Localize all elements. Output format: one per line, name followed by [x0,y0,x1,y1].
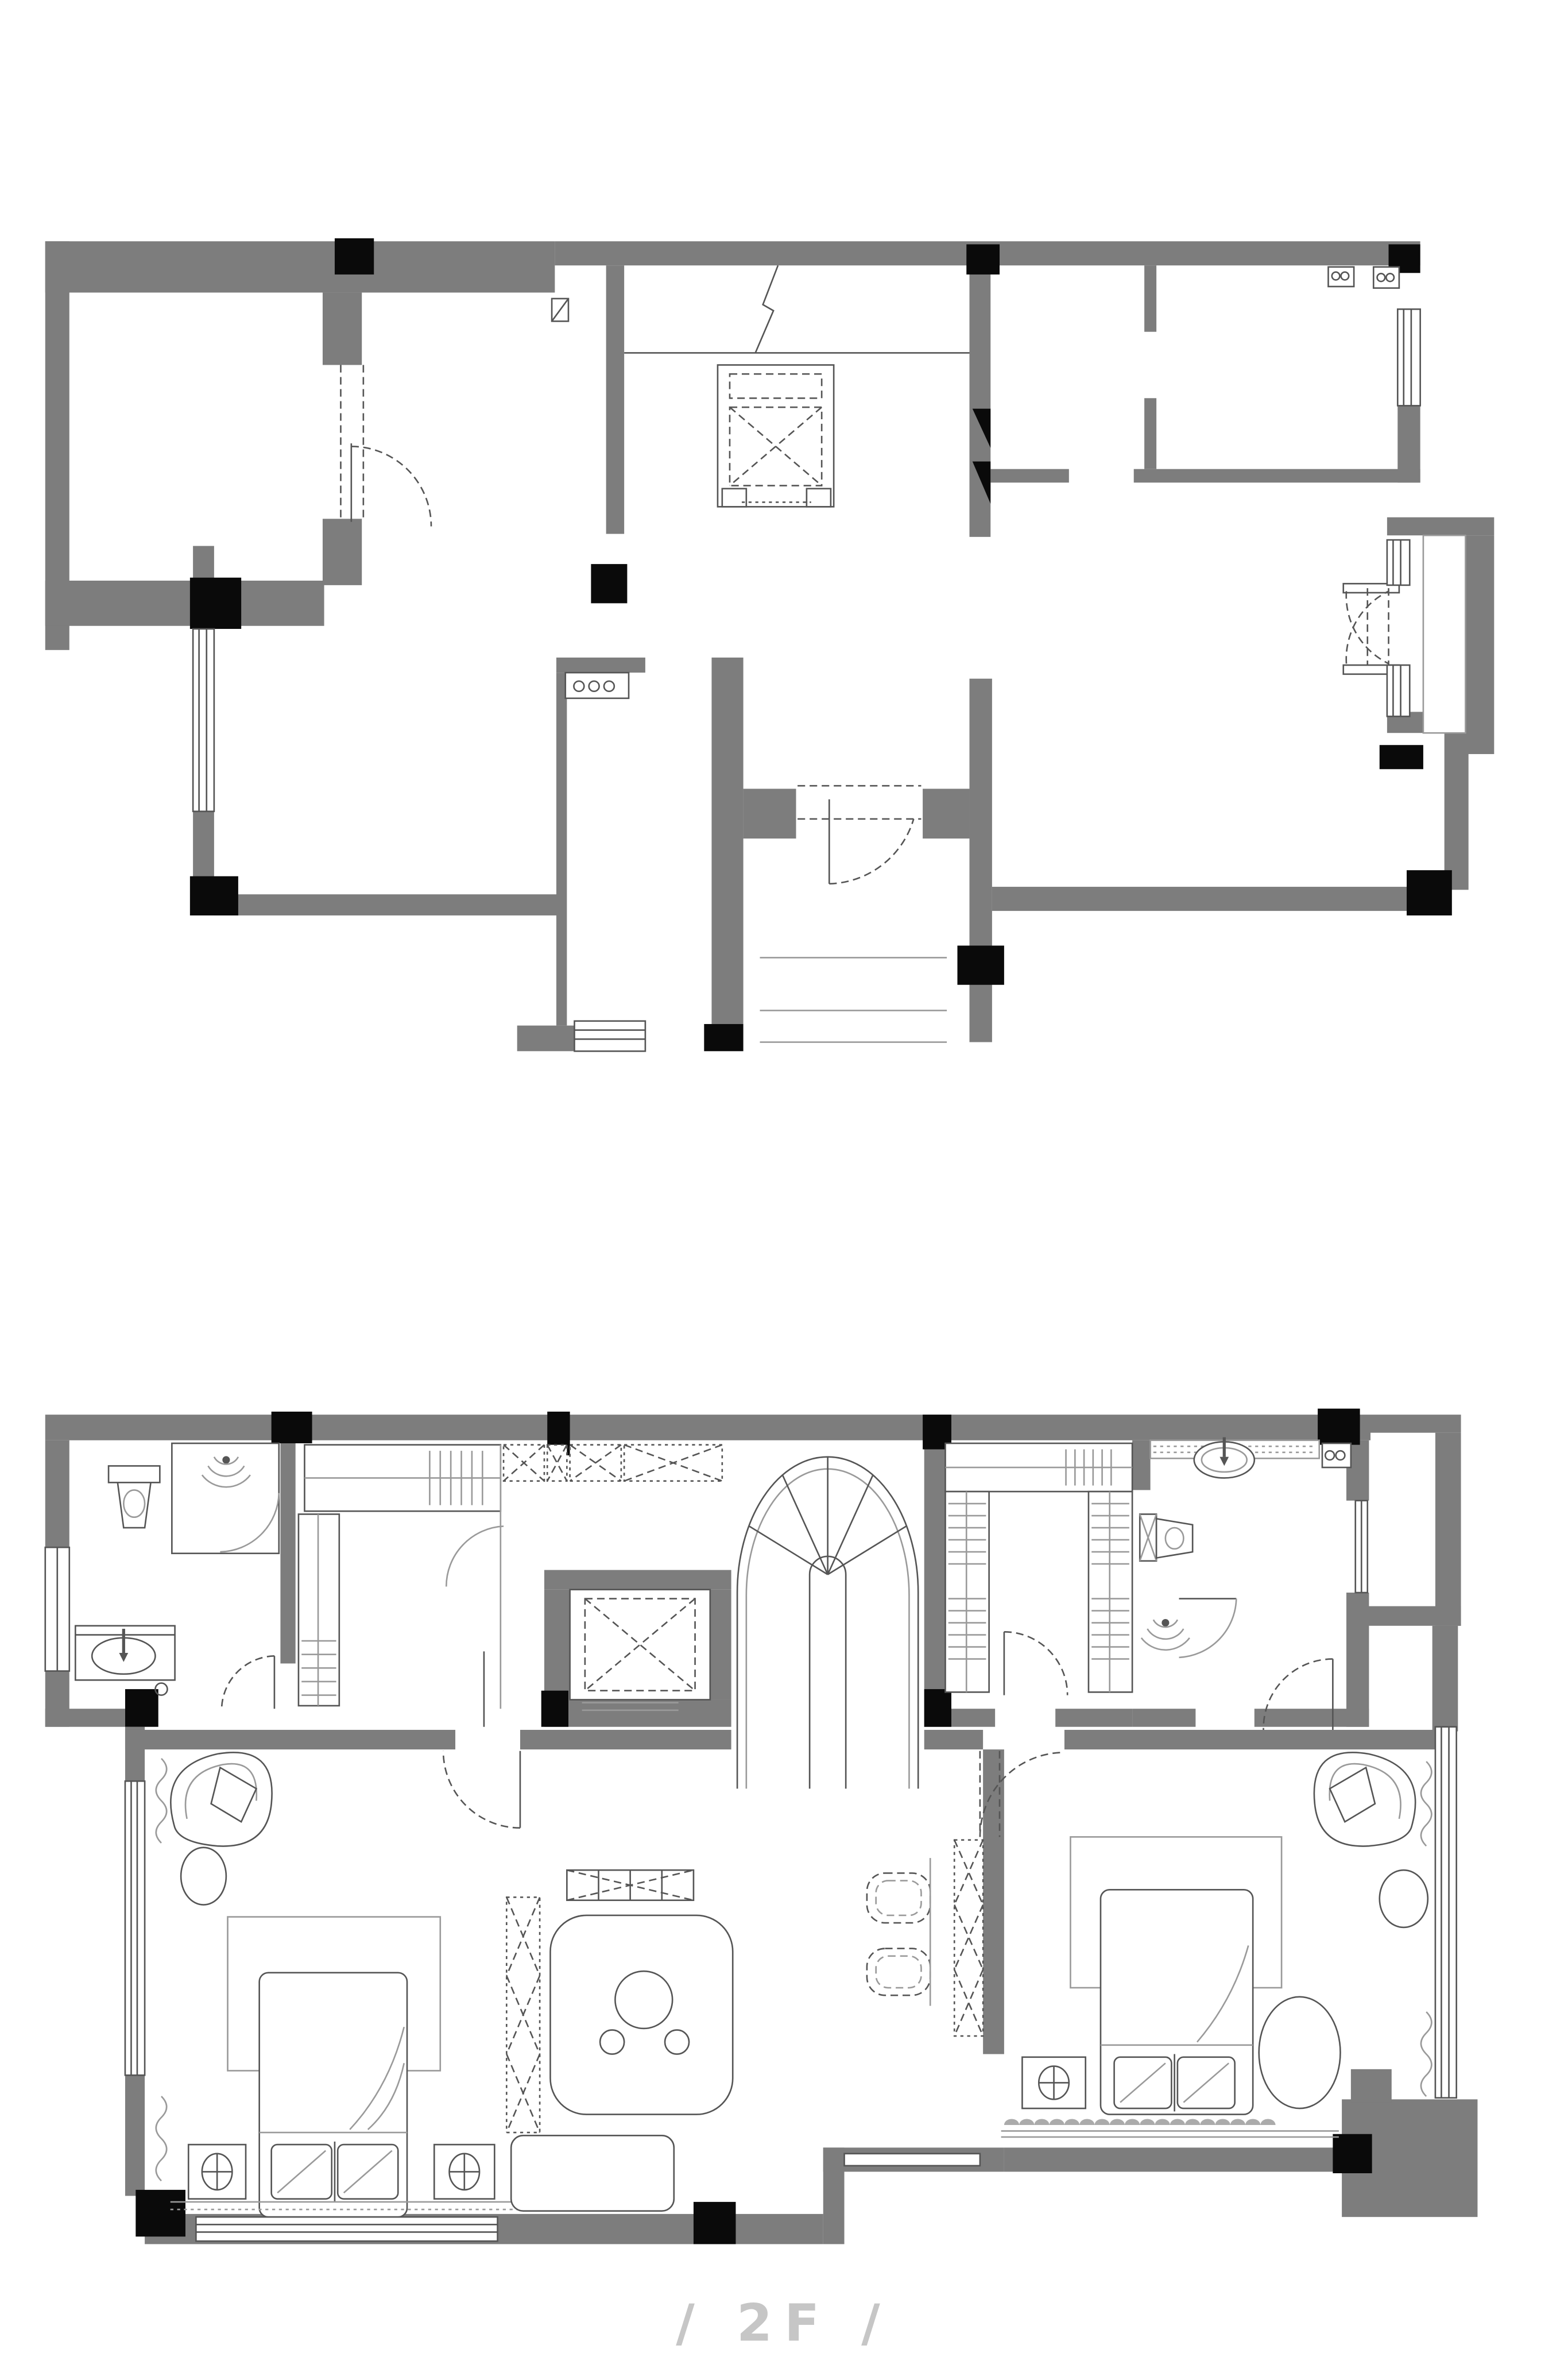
desk-chair [615,1971,672,2029]
door-swing [443,1751,520,1828]
column [272,1412,312,1443]
radiator-bench [1004,2119,1276,2125]
pouf [1259,1997,1341,2108]
window [196,2217,497,2241]
plan-shape [990,469,1069,483]
floor-2-plan [45,1409,1478,2244]
column [1318,1409,1360,1445]
side-table [181,1848,226,1905]
floor-1-plan [45,238,1495,1051]
plan-shape [544,1699,731,1726]
plan-shape [1433,1626,1458,1732]
plan-shape [1144,265,1156,332]
floor-label: / 2F / [676,2293,892,2352]
shower-sprinkler-icon [222,1456,230,1463]
column [924,1689,951,1727]
plan-shape [876,1881,922,1915]
stair-break-line [756,265,778,353]
plan-shape [323,519,362,585]
shelf-unit [954,1840,983,2036]
plan-shape [722,489,746,507]
plan-shape [710,1590,731,1700]
plan-shape [983,1749,1004,2054]
plan-shape [969,679,992,1042]
plan-shape [520,1730,731,1749]
plan-shape [1364,1606,1461,1626]
plan-shape [600,2030,624,2054]
plan-shape [1445,733,1469,890]
window [1397,309,1420,405]
threshold [845,2154,980,2166]
plan-shape [1351,2069,1392,2103]
column [541,1691,568,1727]
plan-shape [556,658,645,673]
plan-shape [711,658,743,1024]
bench [511,2135,674,2211]
entry-door-swing [829,819,913,884]
plan-shape [214,894,561,915]
column [335,238,374,275]
window [125,1781,145,2075]
door-swing [446,1526,504,1586]
plan-shape [807,489,831,507]
window [193,629,214,812]
plan-shape [1397,405,1420,482]
plan-shape [1132,1709,1195,1727]
column [190,876,238,915]
curtain-icon [1421,2012,1431,2096]
plan-shape [556,673,567,1025]
plan-shape [1064,1730,1435,1749]
plan-shape [1147,1629,1183,1639]
window [1387,540,1410,585]
column [957,945,1004,984]
plan-shape [1465,535,1494,754]
door-swing [222,1656,274,1709]
plan-shape [1132,1440,1151,1490]
column [704,1024,743,1051]
plan-shape [992,887,1445,911]
column [694,2202,736,2244]
plan-shape [125,2075,145,2196]
shower-door-swing [1179,1599,1237,1657]
side-table [1380,1870,1428,1927]
window [1435,1727,1457,2098]
floor-plan-canvas: / 2F / [0,0,1568,2353]
plan-shape [1387,517,1494,536]
plan-shape [323,292,362,365]
column [591,564,627,603]
plan-shape [744,789,796,839]
column [190,578,241,629]
kitchen-counter [566,673,629,698]
curtain-icon [156,1759,167,1843]
elevator-shaft [570,1590,710,1700]
plan-shape [876,1956,922,1988]
plan-shape [125,1730,455,1749]
floorplan-page: / 2F / [0,0,1568,2353]
plan-shape [1004,2147,1342,2172]
column [1333,2134,1372,2173]
bay-recess [1423,535,1466,733]
washer [1322,1443,1351,1467]
column [1407,870,1452,915]
plan-shape [544,1570,731,1590]
plan-shape [1370,1415,1461,1433]
plan-shape [1435,1433,1461,1626]
plan-shape [1134,469,1420,483]
plan-shape [1144,398,1156,469]
window [1387,665,1410,716]
plan-shape [45,1709,125,1727]
column [1380,745,1423,769]
toilet [109,1466,160,1482]
shower-sprinkler-icon [1162,1619,1169,1626]
wall-top-left [45,241,555,292]
plan-shape [924,1730,983,1749]
plan-shape [280,1440,295,1664]
curtain-icon [156,2096,167,2181]
plan-shape [1055,1709,1132,1727]
column [135,2190,185,2236]
plan-shape [923,789,969,839]
plan-shape [924,1440,946,1727]
plan-shape [544,1590,570,1700]
plan-shape [45,581,324,626]
door-swing [1004,1632,1067,1695]
plan-shape [1156,1519,1193,1558]
plan-shape [945,1709,995,1727]
plan-shape [193,812,214,878]
column [966,244,1000,275]
column [125,1689,158,1727]
wall-top [45,1415,1370,1440]
window [574,1021,645,1052]
plan-shape [665,2030,689,2054]
plan-shape [1255,1709,1369,1727]
curtain-icon [1421,1761,1431,1846]
stairwell-wall-left [606,265,625,534]
